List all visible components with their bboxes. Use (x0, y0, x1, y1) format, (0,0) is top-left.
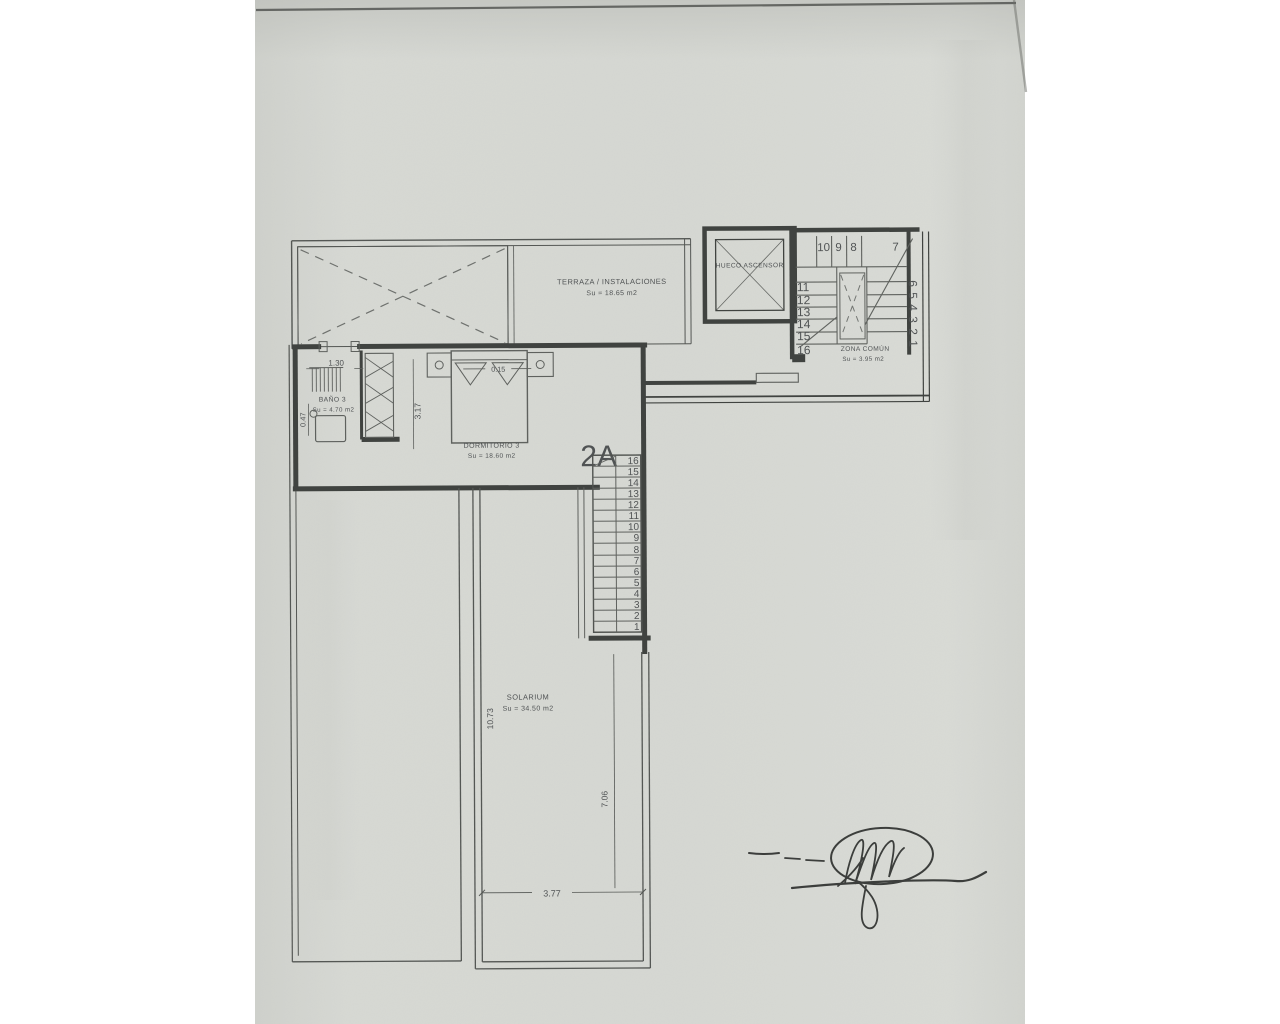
scanned-floor-plan-page: TERRAZA / INSTALACIONES Su = 18.65 m2 HU… (0, 0, 1280, 1024)
stair-num: 12 (628, 500, 640, 511)
dim-solarium-right: 7.06 (599, 791, 609, 808)
stair-num: 10 (628, 522, 640, 533)
ascensor-label: HUECO ASCENSOR (716, 262, 784, 269)
stair-num: 16 (628, 456, 640, 467)
dim-solarium-left: 10.73 (485, 708, 495, 730)
unit-label: 2A (580, 440, 617, 473)
stair-num: 13 (628, 489, 640, 500)
stair-num: 1 (906, 340, 920, 347)
stair-num: 11 (797, 280, 810, 294)
dim-solarium-width: 3.77 (543, 888, 561, 898)
stair-num: 2 (634, 611, 640, 622)
stair-num: 6 (906, 280, 920, 287)
stair-num: 3 (906, 316, 920, 323)
stair-num: 11 (629, 511, 640, 522)
stair-num: 10 (817, 242, 830, 254)
stair-num: 8 (634, 545, 640, 556)
stair-num: 4 (634, 589, 640, 600)
bano-area: Su = 4.70 m2 (313, 406, 355, 413)
terraza-label: TERRAZA / INSTALACIONES (557, 277, 667, 287)
zona-comun-label: ZONA COMÚN (841, 344, 890, 353)
solarium-area-label: Su = 34.50 m2 (503, 705, 554, 712)
stair-num: 15 (797, 329, 811, 343)
stair-num: 9 (835, 242, 841, 254)
stair-num: 9 (634, 533, 640, 544)
stair-num: 7 (634, 556, 640, 567)
terraza-area: Su = 18.65 m2 (586, 290, 637, 297)
dim-bano-side: 0.47 (298, 412, 307, 427)
stair-num: 3 (634, 600, 640, 611)
floor-plan-canvas: TERRAZA / INSTALACIONES Su = 18.65 m2 HU… (0, 0, 1280, 1024)
bano-label: BAÑO 3 (319, 395, 346, 404)
dim-bed-gap: 0.15 (491, 365, 505, 374)
stair-num: 7 (892, 242, 898, 254)
dormitorio-area: Su = 18.60 m2 (468, 453, 516, 460)
zona-comun-area: Su = 3.95 m2 (842, 356, 884, 363)
solarium-label: SOLARIUM (507, 692, 549, 701)
dormitorio-label: DORMITORIO 3 (464, 443, 520, 450)
stair-num: 2 (906, 328, 920, 335)
dim-dormitorio-side: 3.17 (412, 403, 422, 420)
stair-num: 1 (634, 622, 640, 633)
stair-num: 8 (850, 242, 856, 254)
stair-num: 5 (634, 578, 640, 589)
stair-num: 14 (628, 478, 640, 489)
stair-num: 5 (906, 292, 920, 299)
stair-num: 16 (797, 343, 811, 357)
stair-num: 4 (906, 304, 920, 311)
dim-bano-door: 1.30 (328, 359, 344, 368)
stair-num: 6 (634, 567, 640, 578)
stair-num: 15 (628, 467, 640, 478)
